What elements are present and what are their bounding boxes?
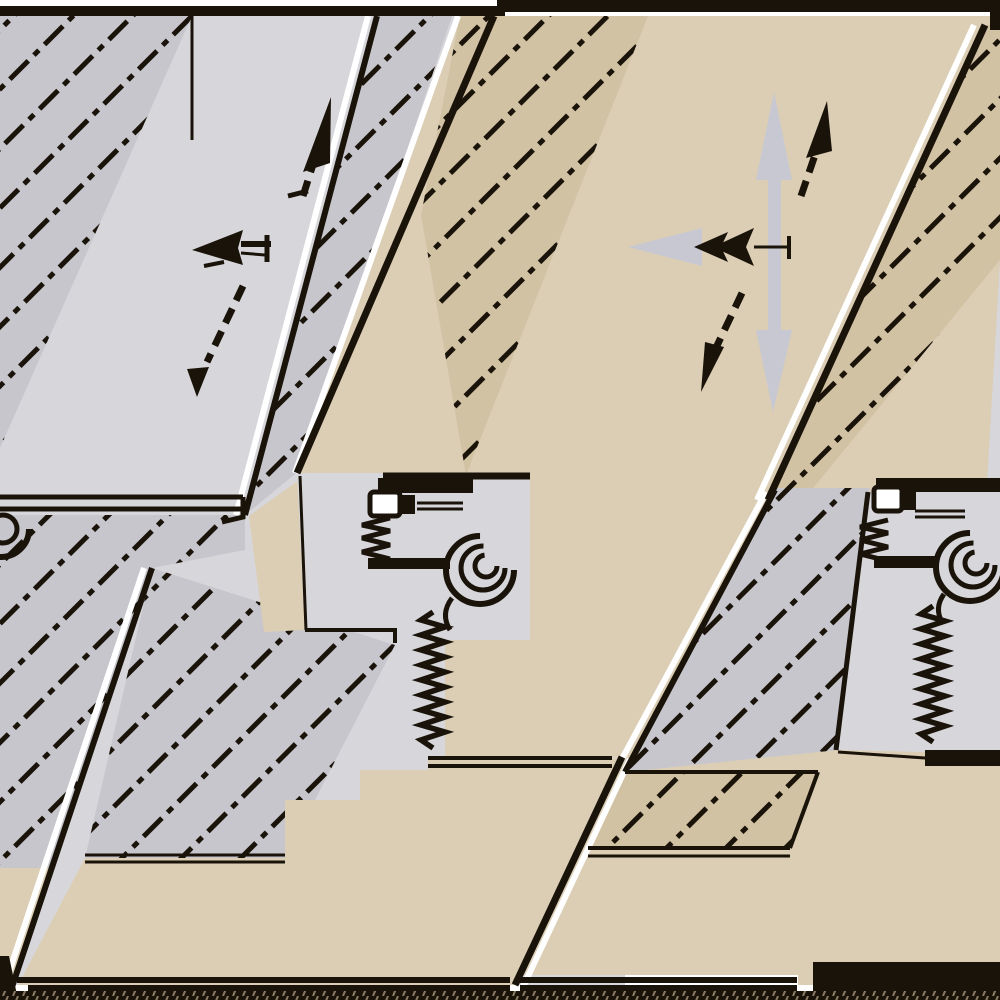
bracket-nub (400, 495, 415, 514)
bottom-thin-line-left (17, 977, 510, 983)
arrow-left-shaft-2 (241, 253, 265, 255)
arrow-vertical-shaft (768, 172, 781, 340)
top-border-right (497, 0, 1000, 12)
technical-diagram (0, 0, 1000, 1000)
screw-head (370, 492, 400, 516)
bracket-arm (368, 558, 450, 569)
top-right-nub (990, 12, 1000, 30)
top-border-left (0, 6, 505, 16)
diagram-stage (0, 0, 1000, 1000)
bracket-arm (874, 556, 938, 568)
bottom-thin-line-mid (520, 977, 797, 983)
ground-hatch-strip (0, 991, 1000, 1000)
bracket-nub (902, 491, 916, 510)
right-housing-bottom-bar (925, 750, 1000, 766)
right-tan-parallelogram-hatch (588, 772, 818, 848)
screw-head (874, 487, 902, 511)
